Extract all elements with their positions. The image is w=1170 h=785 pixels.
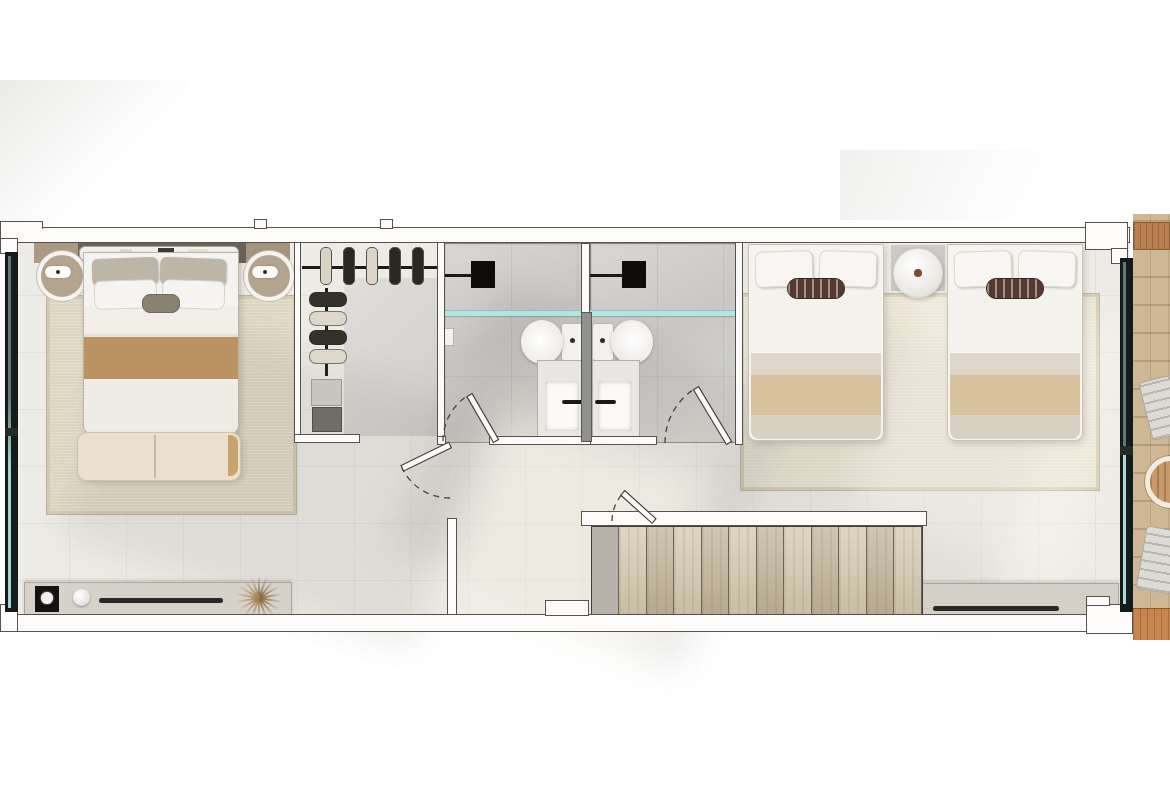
shared-side-table <box>893 248 943 298</box>
sun-lounger <box>1136 525 1170 594</box>
rain-shower-head <box>471 261 495 288</box>
sun-lounger <box>1138 375 1170 441</box>
toilet-cistern <box>561 323 583 361</box>
accent-pillow <box>986 278 1044 299</box>
twin-bed-right <box>947 244 1083 441</box>
glass-mullion <box>1120 446 1133 455</box>
wall-bottom <box>0 614 1133 632</box>
closet-bathroom-wall <box>437 242 445 443</box>
stair-tread <box>784 527 812 617</box>
shoe-pair <box>309 292 347 307</box>
tv-bar <box>933 606 1059 611</box>
bench-wood-end <box>228 435 238 476</box>
folded-clothes-light <box>311 379 342 406</box>
white-flower <box>41 592 53 604</box>
glass-pane <box>1123 262 1126 446</box>
hall-wall-stub <box>437 436 446 445</box>
wall-top-right-jog <box>1085 222 1128 250</box>
vanity <box>537 360 585 440</box>
glass-pane <box>1123 452 1126 604</box>
twin-bed-left <box>748 244 884 441</box>
master-bed <box>83 252 239 435</box>
decor-tray <box>35 586 59 612</box>
folded-clothes-dark <box>312 407 342 432</box>
divider-door-panel <box>581 312 592 442</box>
toilet-bowl <box>611 320 653 364</box>
stair-tread <box>894 527 922 617</box>
terrace <box>1133 214 1170 640</box>
faucet <box>562 400 583 404</box>
shower-arm <box>590 274 622 277</box>
terrace-round-table <box>1145 456 1170 508</box>
table-lamp <box>45 266 71 278</box>
stair-tread <box>702 527 730 617</box>
table-lamp <box>252 266 278 278</box>
rain-shower-head <box>622 261 646 288</box>
duvet <box>84 306 238 434</box>
shower-glass-screen <box>444 310 581 316</box>
bed-bench <box>77 432 241 481</box>
stair-tread <box>839 527 867 617</box>
west-glass-wall <box>5 252 18 612</box>
closet-floor <box>344 278 438 436</box>
lumbar-pillow <box>142 294 180 313</box>
page-shadow <box>0 80 190 230</box>
shower-arm <box>444 274 472 277</box>
stair-tread <box>757 527 785 617</box>
closet-shoe-rows <box>309 292 345 364</box>
wall-top <box>0 227 1130 243</box>
vanity <box>592 360 640 440</box>
bathroom2-bedroom-wall <box>735 242 743 445</box>
page-shadow <box>840 150 1120 220</box>
faucet <box>595 400 616 404</box>
stair-treads <box>619 527 922 617</box>
tv-bar <box>99 598 223 603</box>
lamp-bulb <box>263 270 267 274</box>
floor-plan-render: { "scene": { "kind": "upper-floor-plan-t… <box>0 0 1170 785</box>
hall-wall <box>489 436 591 445</box>
pergola-beam <box>1133 222 1170 250</box>
deck-strip <box>1133 608 1170 640</box>
vase <box>73 589 90 606</box>
closet-wall-bottom <box>294 434 360 443</box>
nightstand-right <box>244 251 294 301</box>
stair-tread <box>619 527 647 617</box>
stair-tread <box>647 527 675 617</box>
bench-seam <box>154 435 156 478</box>
wall-bottom-notch <box>545 600 589 616</box>
staircase <box>591 526 923 618</box>
lamp-bulb <box>56 270 60 274</box>
wall-bottom-right-step <box>1086 596 1110 606</box>
closet-garments <box>318 242 434 288</box>
duvet <box>751 289 881 439</box>
stair-tread <box>812 527 840 617</box>
shoe-pair <box>309 311 347 326</box>
stair-landing <box>592 527 619 617</box>
stair-tread <box>674 527 702 617</box>
table-decor-dot <box>914 269 922 277</box>
glass-mullion <box>5 428 18 436</box>
hanging-garment <box>343 247 355 285</box>
accent-pillow <box>787 278 845 299</box>
wall-top-step <box>0 221 43 229</box>
stair-wall-top <box>581 511 927 526</box>
flush-button <box>600 338 605 343</box>
toilet-bowl <box>521 320 563 364</box>
hanging-garment <box>412 247 424 285</box>
hall-wall <box>590 436 657 445</box>
flush-button <box>570 338 575 343</box>
wall-niche <box>444 328 454 346</box>
east-glass-wall <box>1120 258 1133 612</box>
hanging-garment <box>389 247 401 285</box>
shoe-pair <box>309 349 347 364</box>
sink-basin <box>545 381 579 431</box>
hanging-garment <box>366 247 378 285</box>
wall-pier <box>254 219 267 229</box>
hanging-garment <box>320 247 332 285</box>
wall-pier <box>380 219 393 229</box>
stair-tread <box>867 527 895 617</box>
shower-glass-screen <box>590 310 735 316</box>
closet-wall-left <box>294 242 301 442</box>
stair-tread <box>729 527 757 617</box>
shoe-pair <box>309 330 347 345</box>
sink-basin <box>598 381 632 431</box>
master-partition-wall <box>447 518 457 616</box>
duvet <box>950 289 1080 439</box>
